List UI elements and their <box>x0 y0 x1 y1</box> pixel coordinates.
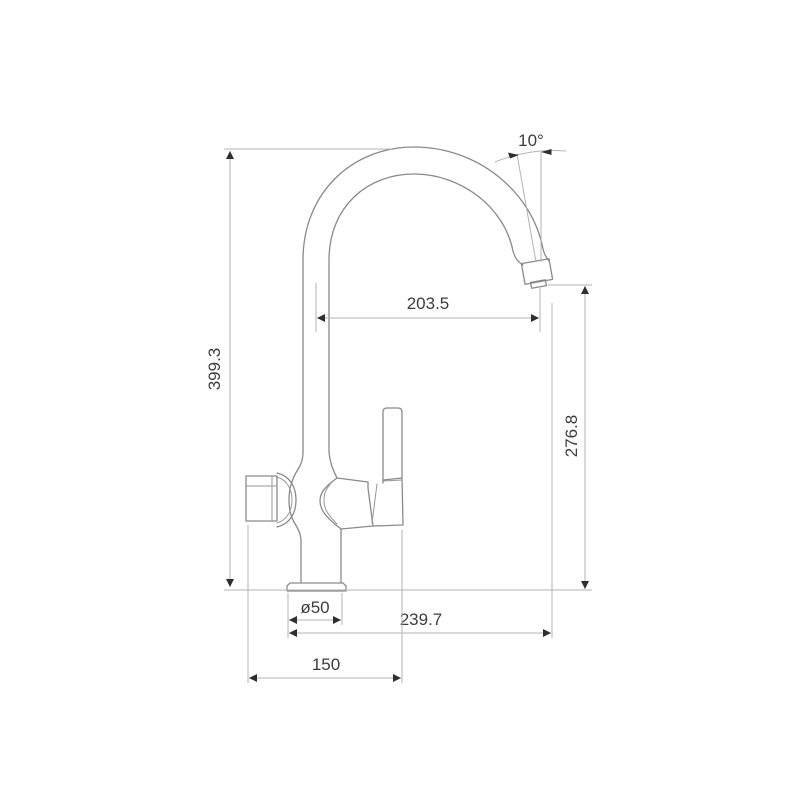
right-cone-bottom <box>341 526 373 529</box>
dimension-label-body-width: 150 <box>312 655 340 674</box>
dimension-label-base-diameter: ø50 <box>300 598 329 617</box>
right-lever-bar <box>383 408 402 483</box>
left-boss-inner <box>277 477 292 523</box>
dimension-spout-angle: 10° <box>495 131 566 262</box>
right-cone-top <box>337 478 368 482</box>
faucet-technical-drawing: 399.3 10° 203.5 276.8 ø50 239.7 <box>0 0 800 800</box>
faucet-outline <box>246 147 553 591</box>
dimension-label-spout-reach: 203.5 <box>407 294 450 313</box>
drawing-canvas: 399.3 10° 203.5 276.8 ø50 239.7 <box>0 0 800 800</box>
spout-inner-edge <box>329 174 523 452</box>
dimension-spout-reach: 203.5 <box>316 283 540 332</box>
dimension-base-diameter: ø50 <box>288 593 342 638</box>
spout-aerator-housing <box>521 259 552 285</box>
dimension-label-overall-height: 399.3 <box>205 348 224 391</box>
right-handle-joint <box>368 478 403 526</box>
dimension-label-overall-depth: 239.7 <box>400 610 443 629</box>
angle-ref-tilted <box>517 154 536 262</box>
body-right-edge <box>329 452 337 478</box>
dimension-outlet-height: 276.8 <box>548 285 592 638</box>
angle-arc <box>495 150 566 162</box>
dimension-overall-height: 399.3 <box>205 149 392 587</box>
body-right-crease-outer <box>320 478 341 529</box>
dimension-label-spout-angle: 10° <box>518 131 544 150</box>
dimension-label-outlet-height: 276.8 <box>562 415 581 458</box>
right-joint-crease <box>372 484 377 523</box>
